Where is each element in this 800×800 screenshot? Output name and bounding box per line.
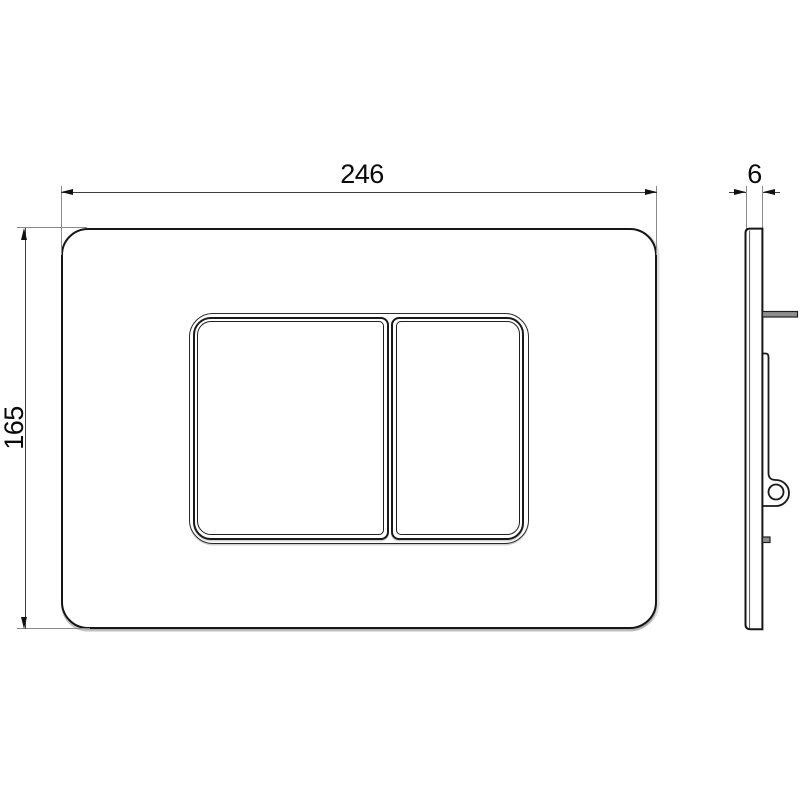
button-recess-outline <box>189 313 529 544</box>
extension-line-right <box>656 186 657 255</box>
small-flush-button-bevel <box>396 321 520 535</box>
large-flush-button <box>193 317 389 540</box>
dimension-line-width <box>61 192 657 193</box>
arrowhead-up-icon <box>21 228 27 240</box>
small-flush-button <box>391 317 524 540</box>
extension-line-bottom <box>17 628 90 629</box>
arrowhead-inward-left-icon <box>763 189 775 195</box>
dimension-width-label: 246 <box>322 159 402 189</box>
dimension-height-label: 165 <box>0 388 29 468</box>
plate-profile <box>746 229 763 630</box>
mounting-bracket-profile <box>763 354 790 507</box>
dimension-thickness-label: 6 <box>735 159 775 189</box>
flush-plate-front-view <box>61 228 657 629</box>
arrowhead-inward-right-icon <box>734 189 746 195</box>
large-flush-button-bevel <box>197 321 384 535</box>
arrowhead-down-icon <box>21 617 27 629</box>
fixing-pin <box>763 312 798 318</box>
arrowhead-right-icon <box>645 189 657 195</box>
arrowhead-left-icon <box>61 189 73 195</box>
retaining-clip <box>763 537 771 543</box>
extension-line-top <box>17 227 87 228</box>
flush-plate-side-view <box>735 220 800 640</box>
extension-line-left <box>61 186 62 255</box>
bracket-hole-icon <box>769 485 784 500</box>
technical-drawing-canvas: 246 165 6 <box>0 0 800 800</box>
